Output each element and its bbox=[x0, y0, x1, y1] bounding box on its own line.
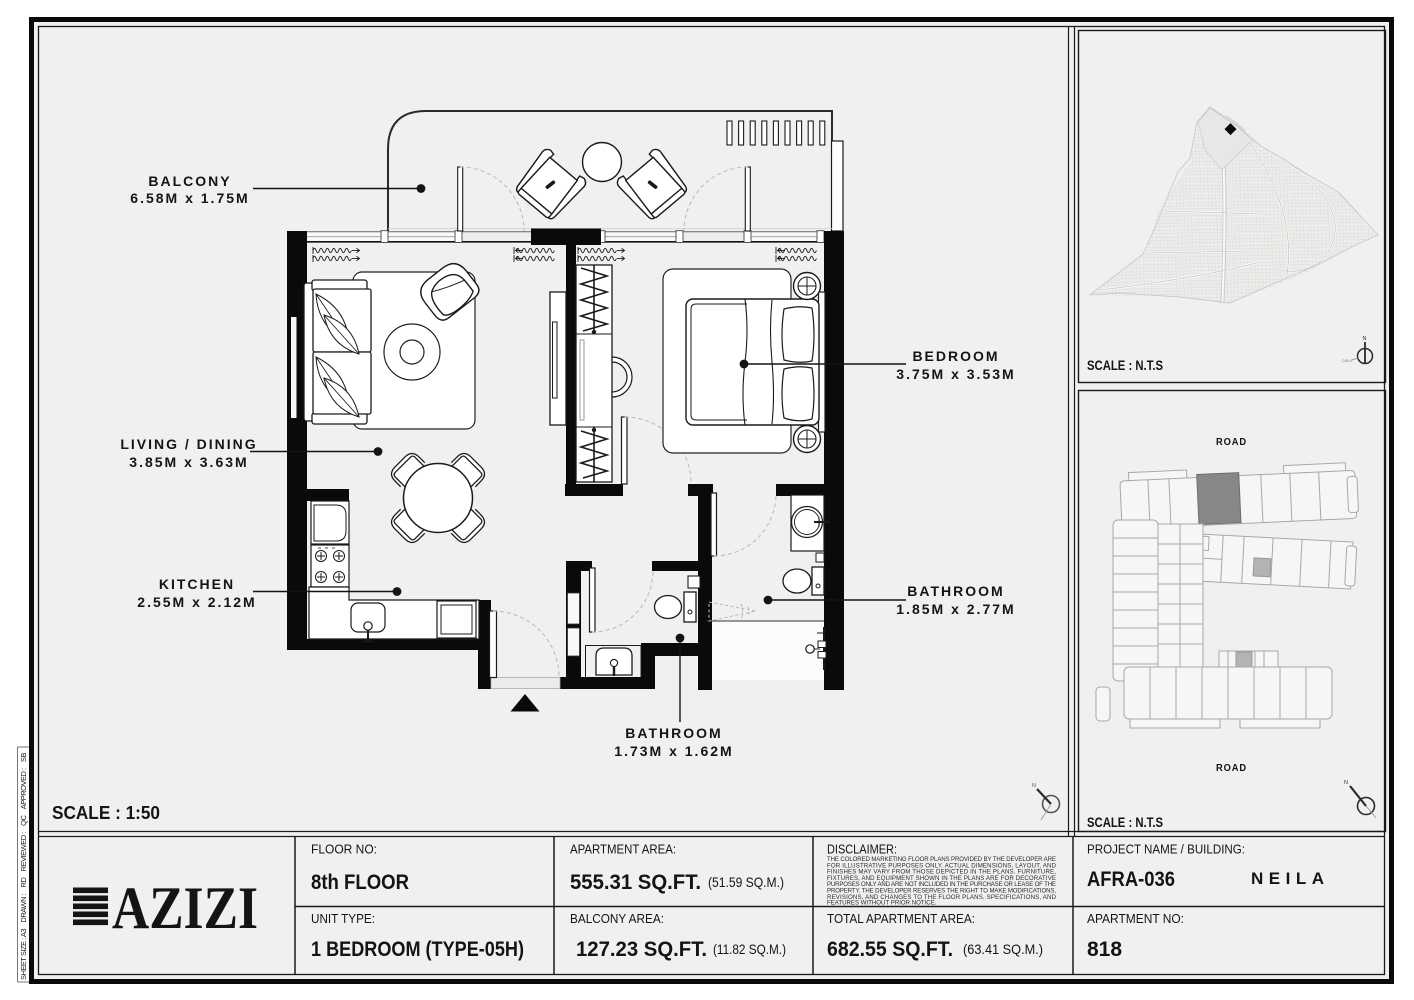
svg-text:DISCLAIMER:: DISCLAIMER: bbox=[827, 842, 897, 857]
svg-text:APARTMENT NO:: APARTMENT NO: bbox=[1087, 911, 1184, 926]
svg-text:SCALE : 1:50: SCALE : 1:50 bbox=[52, 803, 160, 823]
svg-text:BALCONY AREA:: BALCONY AREA: bbox=[570, 911, 664, 926]
svg-text:127.23 SQ.FT.: 127.23 SQ.FT. bbox=[576, 938, 707, 961]
svg-text:N: N bbox=[1032, 783, 1036, 789]
svg-text:PROJECT NAME / BUILDING:: PROJECT NAME / BUILDING: bbox=[1087, 842, 1245, 857]
svg-text:FLOOR NO:: FLOOR NO: bbox=[311, 842, 377, 857]
svg-text:8th FLOOR: 8th FLOOR bbox=[311, 871, 409, 894]
svg-text:555.31 SQ.FT.: 555.31 SQ.FT. bbox=[570, 871, 701, 894]
svg-text:2.55M x 2.12M: 2.55M x 2.12M bbox=[137, 594, 256, 610]
svg-text:ROAD: ROAD bbox=[1216, 762, 1247, 774]
svg-text:6.58M x 1.75M: 6.58M x 1.75M bbox=[130, 190, 249, 206]
svg-text:AFRA-036: AFRA-036 bbox=[1087, 868, 1175, 891]
svg-text:N: N bbox=[1363, 336, 1367, 342]
svg-text:QIBLA: QIBLA bbox=[1342, 359, 1353, 363]
svg-text:1 BEDROOM (TYPE-05H): 1 BEDROOM (TYPE-05H) bbox=[311, 938, 524, 961]
svg-text:BALCONY: BALCONY bbox=[148, 173, 231, 189]
svg-text:ROAD: ROAD bbox=[1216, 436, 1247, 448]
svg-text:N: N bbox=[1344, 780, 1348, 786]
svg-text:SCALE : N.T.S: SCALE : N.T.S bbox=[1087, 357, 1163, 373]
svg-text:3.85M x 3.63M: 3.85M x 3.63M bbox=[129, 454, 248, 470]
svg-text:AZIZI: AZIZI bbox=[112, 875, 258, 941]
svg-text:TOTAL APARTMENT AREA:: TOTAL APARTMENT AREA: bbox=[827, 911, 975, 926]
svg-text:818: 818 bbox=[1087, 938, 1122, 961]
svg-text:LIVING / DINING: LIVING / DINING bbox=[120, 436, 257, 452]
svg-text:3.75M x 3.53M: 3.75M x 3.53M bbox=[896, 366, 1015, 382]
svg-text:(63.41 SQ.M.): (63.41 SQ.M.) bbox=[963, 941, 1043, 957]
svg-text:682.55 SQ.FT.: 682.55 SQ.FT. bbox=[827, 938, 953, 961]
svg-text:KITCHEN: KITCHEN bbox=[159, 576, 235, 592]
svg-text:BATHROOM: BATHROOM bbox=[907, 583, 1004, 599]
svg-text:UNIT TYPE:: UNIT TYPE: bbox=[311, 911, 375, 926]
svg-text:1.85M x 2.77M: 1.85M x 2.77M bbox=[896, 601, 1015, 617]
svg-text:(11.82 SQ.M.): (11.82 SQ.M.) bbox=[713, 941, 786, 957]
svg-text:1.73M x 1.62M: 1.73M x 1.62M bbox=[614, 743, 733, 759]
svg-text:NEILA: NEILA bbox=[1251, 869, 1330, 888]
svg-text:BATHROOM: BATHROOM bbox=[625, 725, 722, 741]
svg-text:APARTMENT AREA:: APARTMENT AREA: bbox=[570, 842, 676, 857]
svg-text:BEDROOM: BEDROOM bbox=[912, 348, 999, 364]
svg-text:(51.59 SQ.M.): (51.59 SQ.M.) bbox=[708, 874, 784, 890]
svg-text:FEATURES WITHOUT PRIOR NOTICE.: FEATURES WITHOUT PRIOR NOTICE. bbox=[827, 899, 937, 906]
svg-text:SCALE : N.T.S: SCALE : N.T.S bbox=[1087, 814, 1163, 830]
svg-text:SHEET SIZE : A3 DRAWN :: SHEET SIZE : A3 DRAWN : RD REVIEWED : QC… bbox=[19, 752, 28, 980]
